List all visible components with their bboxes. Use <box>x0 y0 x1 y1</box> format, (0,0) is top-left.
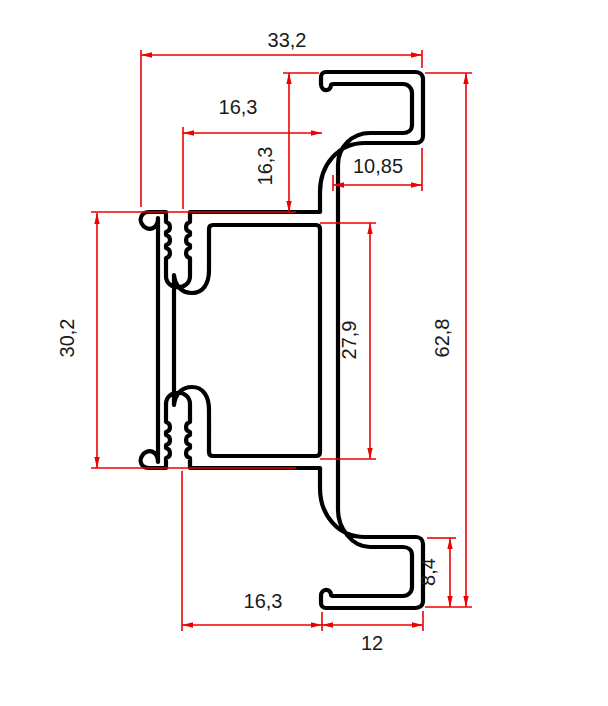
dim-label-inner-height: 27,9 <box>338 321 360 360</box>
dim-label-top-width: 33,2 <box>268 29 307 51</box>
drawing-stage: 33,2 16,3 16,3 10,85 30,2 27,9 62,8 8,4 … <box>0 0 608 706</box>
technical-drawing-canvas: 33,2 16,3 16,3 10,85 30,2 27,9 62,8 8,4 … <box>0 0 608 706</box>
canvas-background <box>0 0 608 706</box>
dim-label-hook-bottom-height: 8,4 <box>417 558 439 586</box>
dim-label-hook-top-width: 10,85 <box>353 155 403 177</box>
dim-label-bottom-offset: 16,3 <box>244 590 283 612</box>
dim-label-total-height: 62,8 <box>431 319 453 358</box>
dim-label-upper-offset: 16,3 <box>219 96 258 118</box>
dim-label-hook-bottom-width: 12 <box>361 632 383 654</box>
dim-label-body-height: 30,2 <box>56 319 78 358</box>
dim-label-upper-height: 16,3 <box>254 147 276 186</box>
